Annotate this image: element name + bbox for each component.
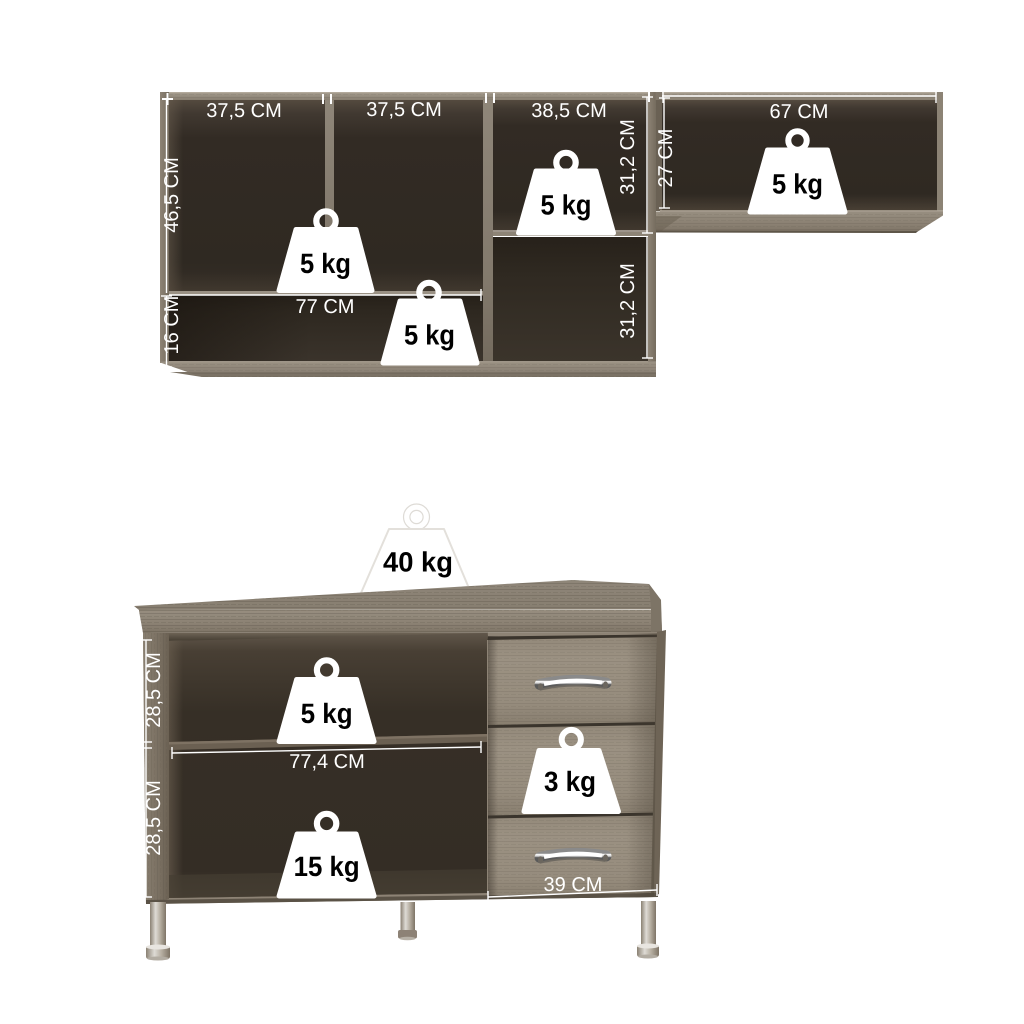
svg-text:5 kg: 5 kg	[541, 190, 592, 221]
svg-text:31,2 CM: 31,2 CM	[617, 263, 639, 339]
svg-text:38,5 CM: 38,5 CM	[531, 100, 607, 122]
svg-text:5 kg: 5 kg	[300, 248, 351, 279]
svg-text:31,2 CM: 31,2 CM	[617, 119, 639, 195]
svg-text:77,4 CM: 77,4 CM	[289, 751, 365, 773]
svg-text:5 kg: 5 kg	[772, 169, 823, 200]
svg-text:37,5 CM: 37,5 CM	[206, 100, 282, 122]
svg-text:67 CM: 67 CM	[770, 101, 829, 123]
svg-text:15 kg: 15 kg	[294, 851, 360, 882]
svg-text:5 kg: 5 kg	[301, 698, 353, 729]
svg-text:16 CM: 16 CM	[161, 296, 183, 355]
svg-text:37,5 CM: 37,5 CM	[366, 99, 442, 121]
svg-text:40 kg: 40 kg	[383, 547, 453, 578]
svg-text:3 kg: 3 kg	[544, 766, 596, 797]
svg-text:46,5 CM: 46,5 CM	[161, 157, 183, 233]
svg-text:27 CM: 27 CM	[655, 129, 677, 188]
svg-text:77 CM: 77 CM	[296, 296, 355, 318]
svg-text:28,5 CM: 28,5 CM	[143, 652, 165, 728]
svg-text:28,5 CM: 28,5 CM	[143, 780, 165, 856]
svg-text:39 CM: 39 CM	[544, 874, 603, 896]
svg-text:5 kg: 5 kg	[404, 320, 455, 351]
